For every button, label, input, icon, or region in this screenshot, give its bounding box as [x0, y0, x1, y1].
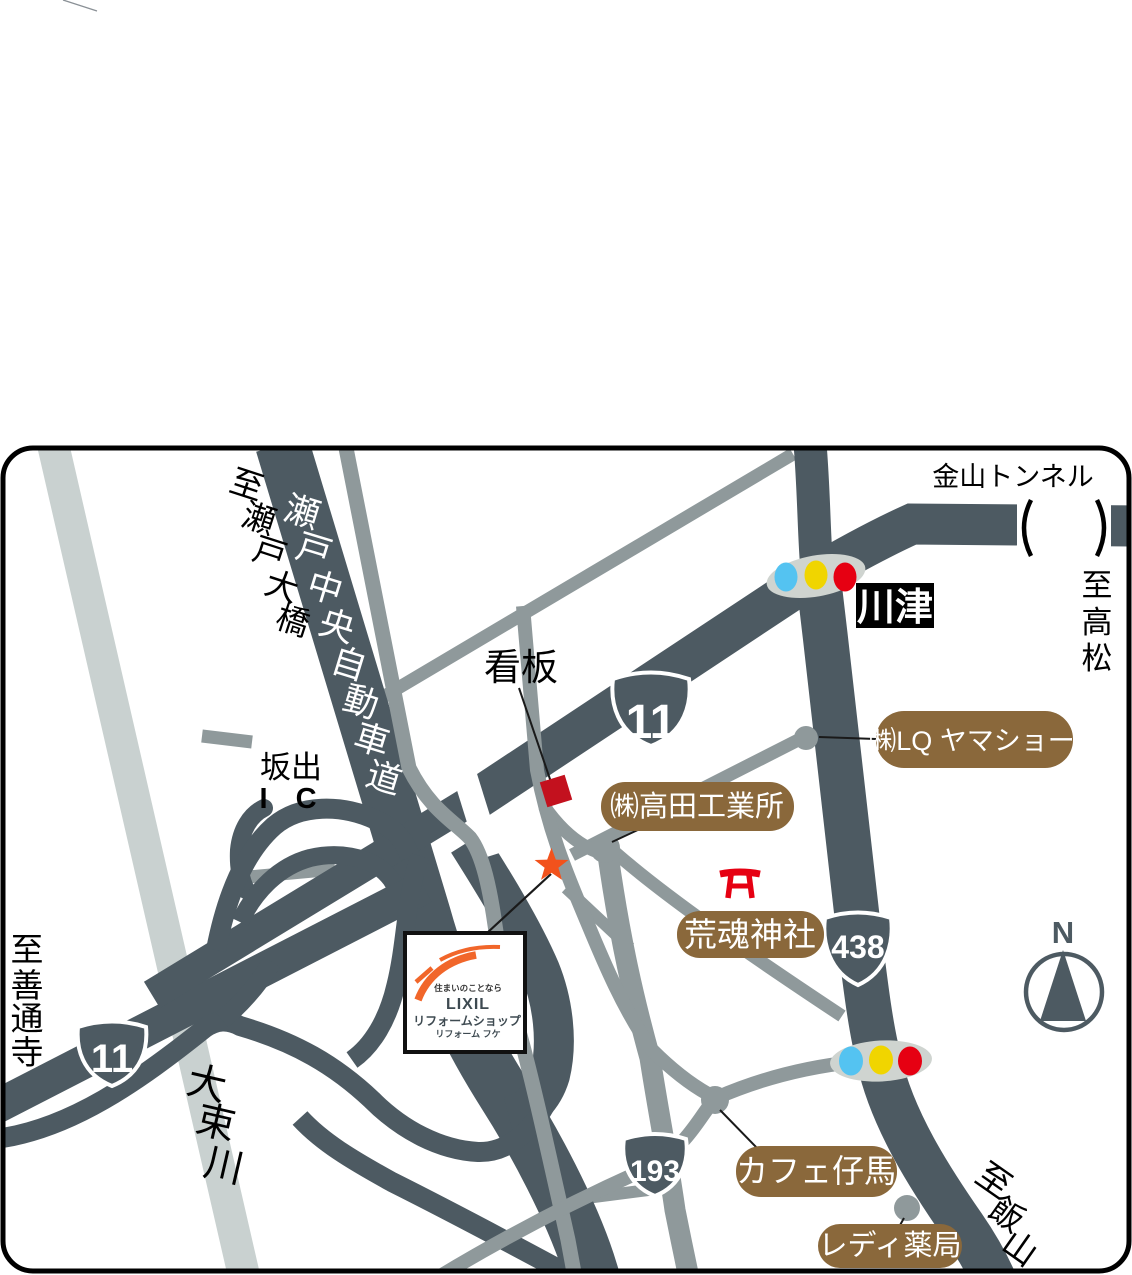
svg-text:N: N — [1052, 915, 1074, 950]
svg-text:カフェ仔馬: カフェ仔馬 — [736, 1153, 896, 1189]
svg-text:リフォーム フケ: リフォーム フケ — [435, 1029, 500, 1039]
svg-text:看板: 看板 — [484, 647, 558, 688]
svg-text:荒魂神社: 荒魂神社 — [684, 916, 816, 953]
svg-text:川: 川 — [200, 1141, 248, 1192]
svg-text:レディ薬局: レディ薬局 — [819, 1229, 962, 1262]
svg-text:㈱LQ ヤマショー: ㈱LQ ヤマショー — [869, 726, 1075, 756]
svg-text:川津: 川津 — [857, 587, 933, 629]
svg-text:坂出: 坂出 — [260, 750, 322, 785]
svg-text:通: 通 — [11, 1000, 44, 1037]
svg-text:至: 至 — [1082, 568, 1113, 603]
svg-text:㈱高田工業所: ㈱高田工業所 — [610, 790, 784, 823]
svg-text:至: 至 — [11, 931, 44, 968]
svg-text:11: 11 — [91, 1037, 133, 1081]
svg-text:高: 高 — [1082, 605, 1113, 640]
svg-text:善: 善 — [11, 967, 44, 1004]
svg-text:住まいのことなら: 住まいのことなら — [434, 983, 502, 993]
svg-text:11: 11 — [626, 696, 677, 749]
svg-text:寺: 寺 — [11, 1034, 44, 1071]
svg-text:束: 束 — [192, 1098, 240, 1149]
svg-text:193: 193 — [630, 1155, 680, 1188]
svg-text:I C: I C — [259, 783, 326, 815]
svg-text:金山トンネル: 金山トンネル — [932, 462, 1093, 492]
svg-text:438: 438 — [831, 929, 884, 965]
svg-text:松: 松 — [1082, 641, 1113, 676]
svg-text:LIXIL: LIXIL — [446, 996, 490, 1013]
svg-text:リフォームショップ: リフォームショップ — [413, 1013, 522, 1028]
